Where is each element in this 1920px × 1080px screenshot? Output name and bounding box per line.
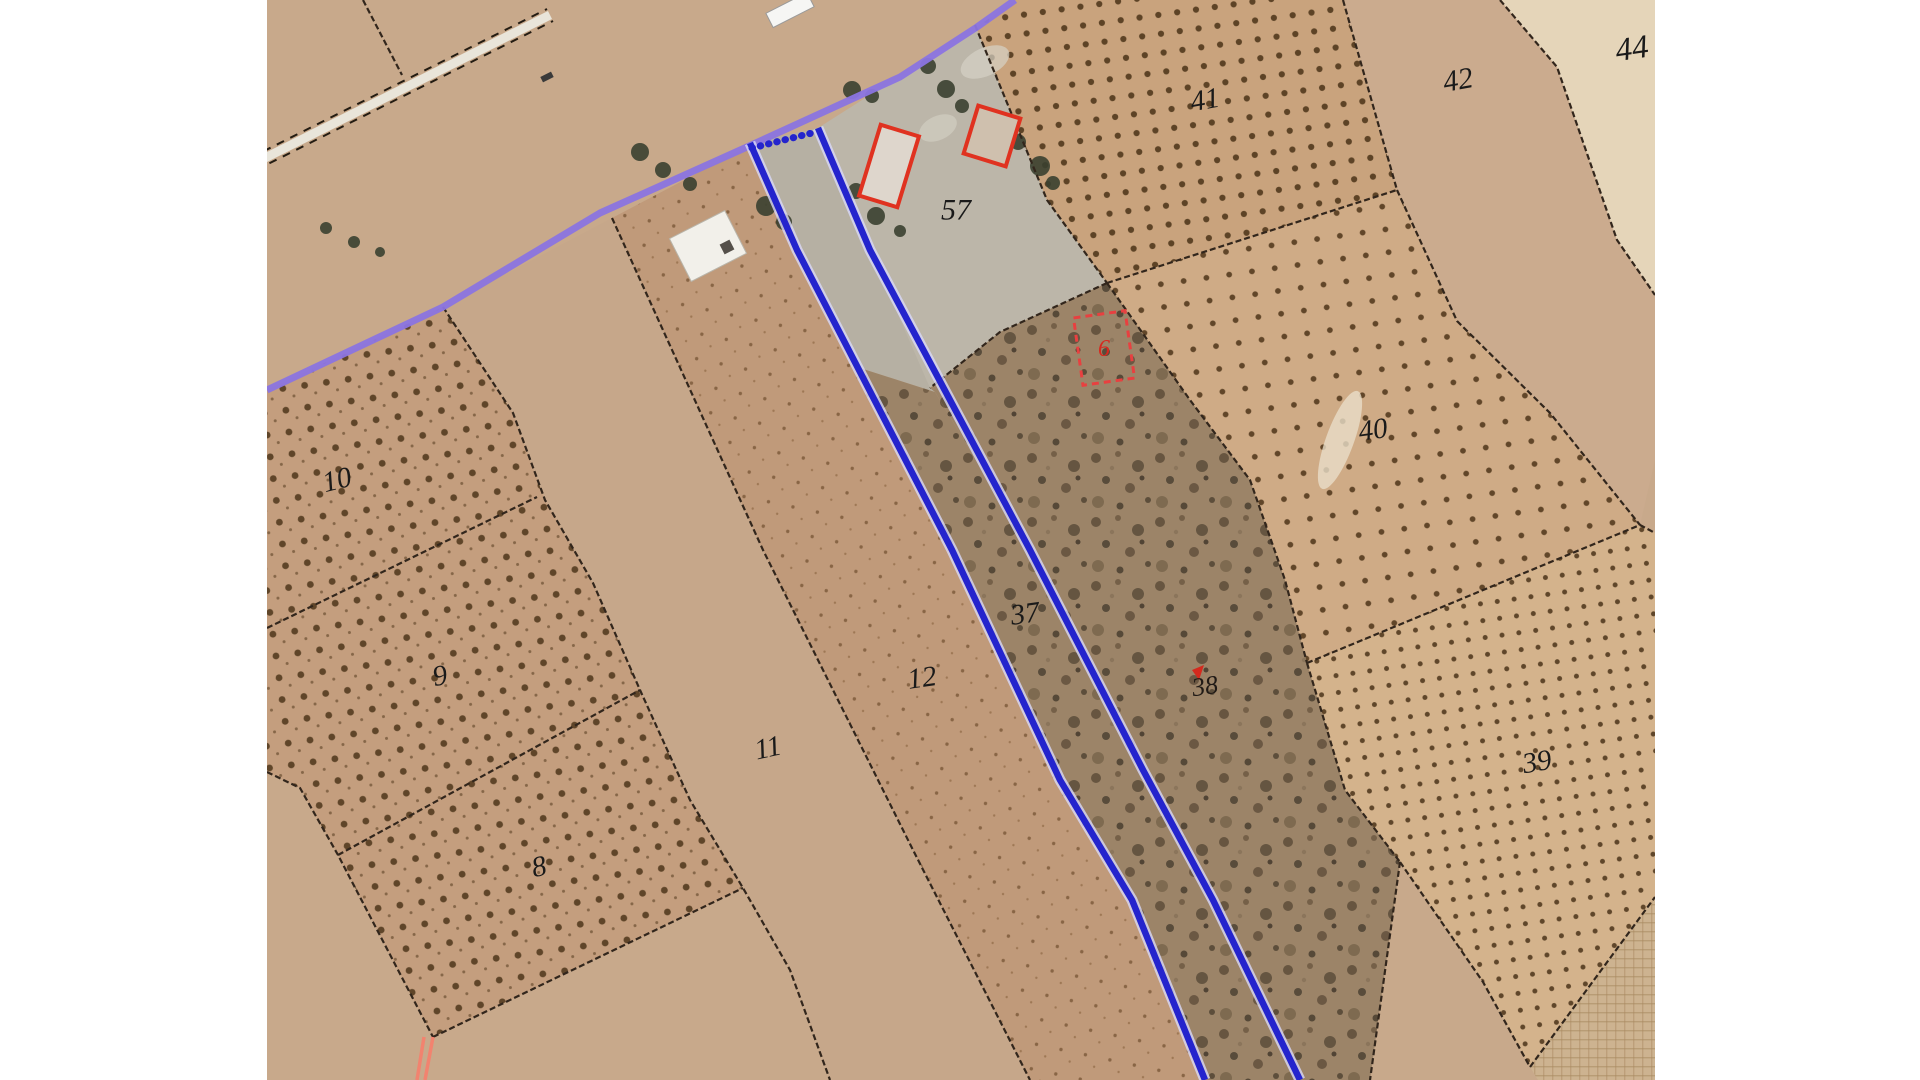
tree-canopy bbox=[894, 225, 906, 237]
parcel-label-39: 39 bbox=[1519, 744, 1555, 781]
tree-canopy bbox=[1030, 156, 1050, 176]
parcel-label-6: 6 bbox=[1098, 336, 1110, 362]
cadastral-aerial-map-viewport: 1098111237385741404244396 bbox=[0, 0, 1920, 1080]
parcel-label-41: 41 bbox=[1188, 82, 1222, 119]
parcel-label-40: 40 bbox=[1356, 412, 1390, 448]
parcel-label-12: 12 bbox=[905, 660, 938, 696]
cadastral-map-canvas: 1098111237385741404244396 bbox=[0, 0, 1920, 1080]
parcel-label-37: 37 bbox=[1007, 596, 1043, 632]
tree-canopy bbox=[348, 236, 360, 248]
tree-canopy bbox=[955, 99, 969, 113]
parcel-label-44: 44 bbox=[1613, 29, 1651, 69]
tree-canopy bbox=[320, 222, 332, 234]
tree-canopy bbox=[375, 247, 385, 257]
tree-canopy bbox=[631, 143, 649, 161]
parcel-label-42: 42 bbox=[1440, 61, 1475, 99]
tree-canopy bbox=[683, 177, 697, 191]
tree-canopy bbox=[1046, 176, 1060, 190]
tree-canopy bbox=[655, 162, 671, 178]
tree-canopy bbox=[867, 207, 885, 225]
parcel-label-38: 38 bbox=[1189, 670, 1220, 702]
parcel-label-57: 57 bbox=[941, 194, 973, 227]
tree-canopy bbox=[937, 80, 955, 98]
